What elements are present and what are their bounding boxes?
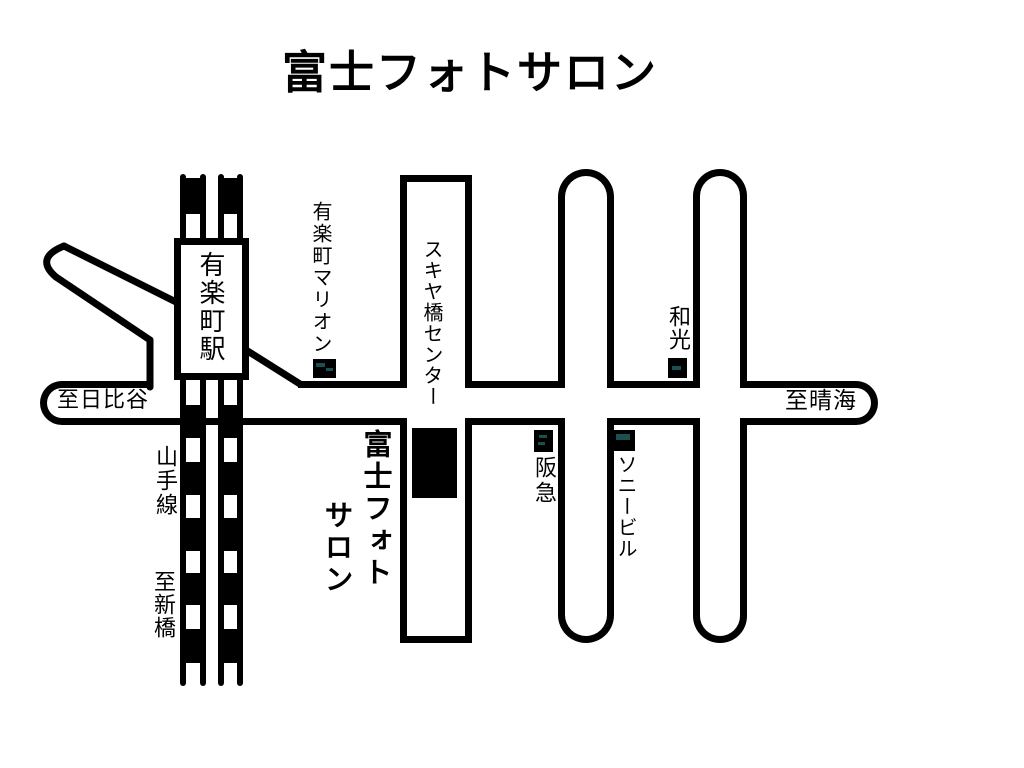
marion-marker-icon <box>313 359 336 378</box>
to-hibiya-label: 至日比谷 <box>57 390 149 412</box>
map-canvas: 富士フォトサロン 至日比谷 至晴海 有楽町駅 有楽町マリオン スキヤ橋センター … <box>0 0 1024 768</box>
map-title: 富士フォトサロン <box>282 50 658 95</box>
sukiyabashi-center-label: スキヤ橋センター <box>422 239 442 407</box>
fork-road-end-cap <box>47 246 64 277</box>
map-drawing <box>0 0 1024 768</box>
hibiya-fork-road <box>47 246 300 387</box>
fuji-photo-salon-label-line1: 富士フォト <box>361 429 390 589</box>
marion-label: 有楽町マリオン <box>311 201 331 355</box>
hankyu-label: 阪急 <box>532 456 554 506</box>
fuji-photo-salon-building-icon <box>412 428 457 498</box>
to-shimbashi-label: 至新橋 <box>151 570 173 639</box>
fuji-photo-salon-label-line2: サロン <box>322 500 351 596</box>
to-harumi-label: 至晴海 <box>785 390 857 413</box>
wako-label: 和光 <box>666 305 688 351</box>
roads-interior <box>47 176 871 636</box>
hankyu-marker-icon <box>534 430 553 452</box>
station-label: 有楽町駅 <box>197 251 223 363</box>
wako-marker-icon <box>668 358 687 378</box>
yamanote-line-label: 山手線 <box>153 445 175 517</box>
sony-building-label: ソニービル <box>616 454 636 559</box>
sony-marker-icon <box>613 430 635 451</box>
